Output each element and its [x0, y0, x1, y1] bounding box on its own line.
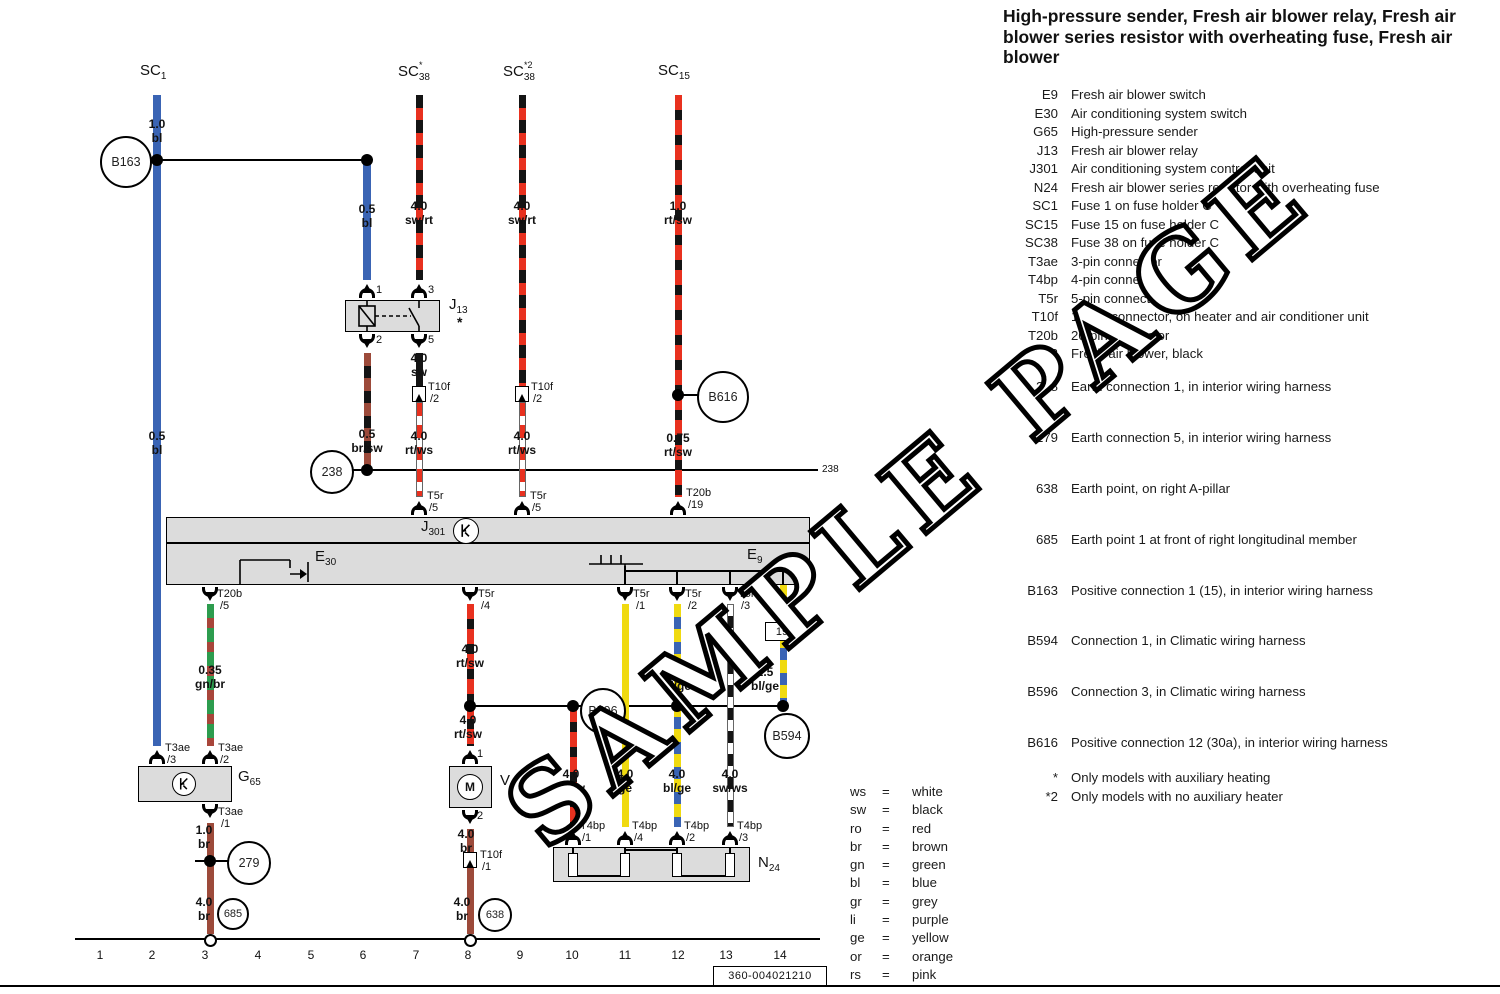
wire-label: 0.35gn/br [182, 664, 238, 691]
wiring-line [148, 159, 367, 161]
legend-description: 5-pin connector [1058, 290, 1162, 309]
wire-thin [624, 566, 626, 585]
diagram-label: T20b [686, 487, 711, 499]
diagram-label: T10f [428, 381, 450, 393]
junction-dot [361, 464, 373, 476]
color-abbr: bl [850, 874, 882, 892]
legend-description: Earth point, on right A-pillar [1058, 480, 1230, 499]
wire-label: 4.0rt/sw [442, 643, 498, 670]
legend-key: E30 [1003, 105, 1058, 124]
wire-thin [572, 847, 574, 853]
legend-description: Only models with no auxiliary heater [1058, 788, 1283, 807]
earth-point-icon [464, 934, 477, 947]
track-number: 8 [460, 948, 476, 962]
resistor-symbol [725, 853, 735, 877]
equals-sign: = [882, 893, 912, 911]
color-code-row-bl: bl=blue [850, 874, 953, 892]
legend-connection-638: 638Earth point, on right A-pillar [1003, 480, 1495, 499]
diagram-label: /1 [221, 818, 230, 830]
track-number: 3 [197, 948, 213, 962]
diagram-label: 1 [477, 748, 483, 760]
wire-label: 4.0rt/ws [494, 430, 550, 457]
color-code-row-or: or=orange [850, 948, 953, 966]
connector-icon [462, 587, 478, 597]
color-abbr: ro [850, 820, 882, 838]
color-abbr: ws [850, 783, 882, 801]
connector-icon [670, 505, 686, 515]
wire-swrt [416, 95, 423, 280]
legend-description: Fresh air blower, black [1058, 345, 1203, 364]
track-number: 4 [250, 948, 266, 962]
wire-thin [676, 571, 678, 585]
legend-component-T4bp: T4bp4-pin connector [1003, 271, 1495, 290]
color-name: yellow [912, 929, 949, 947]
fuse-label-sc15: SC15 [658, 62, 690, 82]
legend-key: SC1 [1003, 197, 1058, 216]
wire-swrt [519, 95, 526, 386]
wire-label: 4.0sw [391, 352, 447, 379]
equals-sign: = [882, 783, 912, 801]
legend-component-E30: E30Air conditioning system switch [1003, 105, 1495, 124]
legend-description: Fresh air blower switch [1058, 86, 1206, 105]
component-label-j301: J301 [421, 518, 445, 538]
wire-label: 2.5bl/ge [737, 666, 793, 693]
node-circle-238: 238 [310, 450, 354, 494]
track-number: 1 [92, 948, 108, 962]
wire-label: 4.0br [434, 896, 490, 923]
legend-description: Fuse 15 on fuse holder C [1058, 216, 1219, 235]
legend-key: T4bp [1003, 271, 1058, 290]
diagram-label: /2 [686, 832, 695, 844]
color-code-row-br: br=brown [850, 838, 953, 856]
diagram-label: T20b [217, 588, 242, 600]
diagram-label: T4bp [632, 820, 657, 832]
diagram-label: T5r [738, 588, 755, 600]
diagram-label: /2 [430, 393, 439, 405]
color-code-row-ge: ge=yellow [850, 929, 953, 947]
equals-sign: = [882, 911, 912, 929]
earth-point-icon [204, 934, 217, 947]
legend-key: 238 [1003, 378, 1058, 397]
color-code-row-ro: ro=red [850, 820, 953, 838]
wire-label: 4.0br [176, 896, 232, 923]
node-circle-B616: B616 [697, 371, 749, 423]
page-title: High-pressure sender, Fresh air blower r… [1003, 6, 1495, 68]
node-circle-279: 279 [227, 841, 271, 885]
legend-component-J301: J301Air conditioning system control unit [1003, 160, 1495, 179]
connection-legend-list: 238Earth connection 1, in interior wirin… [1003, 378, 1495, 753]
component-label-g65: G65 [238, 768, 261, 788]
legend-key: T5r [1003, 290, 1058, 309]
junction-dot [671, 700, 683, 712]
fuse-label-sc38: SC38*2 [503, 60, 532, 83]
track-number: 5 [303, 948, 319, 962]
diagram-label: /3 [741, 600, 750, 612]
equals-sign: = [882, 801, 912, 819]
color-code-row-gn: gn=green [850, 856, 953, 874]
track-number: 6 [355, 948, 371, 962]
diagram-label: * [457, 314, 462, 330]
connector-icon [669, 587, 685, 597]
legend-component-E9: E9Fresh air blower switch [1003, 86, 1495, 105]
diagram-label: /4 [481, 600, 490, 612]
diagram-label: T4bp [684, 820, 709, 832]
color-abbr: or [850, 948, 882, 966]
legend-key: B594 [1003, 632, 1058, 651]
legend-description: Positive connection 1 (15), in interior … [1058, 582, 1373, 601]
inline-connector-icon [515, 386, 529, 402]
legend-description: Connection 1, in Climatic wiring harness [1058, 632, 1306, 651]
diagram-label: /5 [532, 502, 541, 514]
relay-symbol [345, 300, 440, 332]
legend-component-T3ae: T3ae3-pin connector [1003, 253, 1495, 272]
e9-switch-symbol [583, 544, 653, 570]
resistor-symbol [568, 853, 578, 877]
color-code-row-gr: gr=grey [850, 893, 953, 911]
symbol-sender-icon [453, 518, 479, 544]
diagram-label: T10f [480, 849, 502, 861]
connector-icon [462, 810, 478, 820]
wire-label: 0.75rt/sw [650, 432, 706, 459]
legend-key: B616 [1003, 734, 1058, 753]
connector-icon [514, 505, 530, 515]
symbol-motor-icon: M [457, 774, 483, 800]
legend-key: B596 [1003, 683, 1058, 702]
connector-icon [411, 334, 427, 344]
fuse-label-sc38: SC38* [398, 60, 422, 83]
diagram-label: T4bp [737, 820, 762, 832]
diagram-label: /2 [688, 600, 697, 612]
diagram-label: T5r [427, 490, 444, 502]
legend-key: T10f [1003, 308, 1058, 327]
color-name: brown [912, 838, 948, 856]
wire-color-code-table: ws=whitesw=blackro=redbr=browngn=greenbl… [850, 783, 953, 984]
track-reference-box: 19 [765, 622, 799, 641]
diagram-label: T5r [478, 588, 495, 600]
track-number: 10 [564, 948, 580, 962]
legend-description: Only models with auxiliary heating [1058, 769, 1270, 788]
wiring-diagram-page: 19MB163238B616B596B594279685638SC1SC38*S… [0, 0, 1500, 994]
diagram-label: /4 [634, 832, 643, 844]
legend-key: 638 [1003, 480, 1058, 499]
diagram-label: 2 [376, 334, 382, 346]
legend-description: Air conditioning system control unit [1058, 160, 1275, 179]
legend-connection-238: 238Earth connection 1, in interior wirin… [1003, 378, 1495, 397]
color-abbr: br [850, 838, 882, 856]
diagram-label: 2 [477, 810, 483, 822]
wire-label: 1.0bl [129, 118, 185, 145]
legend-component-SC38: SC38Fuse 38 on fuse holder C [1003, 234, 1495, 253]
component-label-e30: E30 [315, 548, 336, 568]
legend-component-N24: N24Fresh air blower series resistor with… [1003, 179, 1495, 198]
diagram-label: T3ae [165, 742, 190, 754]
legend-key: E9 [1003, 86, 1058, 105]
e30-switch-symbol [228, 548, 318, 585]
legend-description: Fuse 1 on fuse holder C [1058, 197, 1212, 216]
diagram-label: T3ae [218, 742, 243, 754]
diagram-label: 3 [428, 284, 434, 296]
wire-bl [153, 95, 161, 746]
symbol-sender-icon [172, 772, 196, 796]
legend-key: J13 [1003, 142, 1058, 161]
component-label-v2: V2 [500, 772, 516, 792]
component-label-n24: N24 [758, 854, 780, 874]
color-name: orange [912, 948, 953, 966]
track-number: 12 [670, 948, 686, 962]
diagram-label: 238 [822, 464, 839, 475]
connector-icon [462, 754, 478, 764]
connector-icon [411, 505, 427, 515]
diagram-label: /1 [482, 861, 491, 873]
diagram-label: /5 [220, 600, 229, 612]
color-name: red [912, 820, 931, 838]
node-circle-B594: B594 [764, 713, 810, 759]
legend-key: T20b [1003, 327, 1058, 346]
legend-description: Positive connection 12 (30a), in interio… [1058, 734, 1388, 753]
diagram-label: T5r [530, 490, 547, 502]
inline-connector-icon [412, 386, 426, 402]
diagram-label: /3 [739, 832, 748, 844]
wiring-line [573, 875, 625, 877]
notes-legend-list: *Only models with auxiliary heating*2Onl… [1003, 769, 1495, 806]
diagram-label: T5r [633, 588, 650, 600]
color-name: white [912, 783, 943, 801]
legend-description: Fuse 38 on fuse holder C [1058, 234, 1219, 253]
wire-label: 4.0bl/ge [649, 666, 705, 693]
wire-label: 4.0sw/rt [391, 200, 447, 227]
color-abbr: ge [850, 929, 882, 947]
wiring-line [677, 875, 730, 877]
legend-description: 4-pin connector [1058, 271, 1162, 290]
connector-icon [617, 835, 633, 845]
node-circle-B596: B596 [580, 688, 626, 734]
legend-component-SC1: SC1Fuse 1 on fuse holder C [1003, 197, 1495, 216]
equals-sign: = [882, 838, 912, 856]
junction-dot [151, 154, 163, 166]
legend-description: Earth connection 5, in interior wiring h… [1058, 429, 1331, 448]
color-name: black [912, 801, 943, 819]
connector-icon [202, 804, 218, 814]
diagram-label: /1 [636, 600, 645, 612]
equals-sign: = [882, 820, 912, 838]
legend-key: B163 [1003, 582, 1058, 601]
legend-component-SC15: SC15Fuse 15 on fuse holder C [1003, 216, 1495, 235]
connector-icon [411, 288, 427, 298]
component-box-n24 [553, 847, 750, 882]
wire-label: 4.0rt/sw [543, 768, 599, 795]
connector-icon [617, 587, 633, 597]
connector-icon [202, 587, 218, 597]
color-abbr: sw [850, 801, 882, 819]
legend-component-G65: G65High-pressure sender [1003, 123, 1495, 142]
wire-label: 4.0rt/sw [440, 714, 496, 741]
fuse-label-sc1: SC1 [140, 62, 166, 82]
wire-label: 0.5br/sw [339, 428, 395, 455]
wire-thin [676, 847, 678, 853]
legend-key: 685 [1003, 531, 1058, 550]
legend-description: Connection 3, in Climatic wiring harness [1058, 683, 1306, 702]
diagram-label: /1 [582, 832, 591, 844]
track-number: 9 [512, 948, 528, 962]
legend-description: 3-pin connector [1058, 253, 1162, 272]
junction-dot [672, 389, 684, 401]
wire-label: 0.5bl [339, 203, 395, 230]
legend-component-V2: V2Fresh air blower, black [1003, 345, 1495, 364]
diagram-label: /2 [220, 754, 229, 766]
diagram-label: 1 [376, 284, 382, 296]
legend-panel: High-pressure sender, Fresh air blower r… [1003, 6, 1495, 68]
connector-icon [359, 334, 375, 344]
connector-icon [149, 754, 165, 764]
legend-description: 10-pin connector, on heater and air cond… [1058, 308, 1369, 327]
diagram-label: /2 [533, 393, 542, 405]
legend-component-J13: J13Fresh air blower relay [1003, 142, 1495, 161]
wire-label: 4.0ge [597, 768, 653, 795]
wire-label: 4.0sw/rt [494, 200, 550, 227]
connector-icon [722, 835, 738, 845]
legend-key: G65 [1003, 123, 1058, 142]
legend-connection-B594: B594Connection 1, in Climatic wiring har… [1003, 632, 1495, 651]
wire-label: 4.0bl/ge [649, 768, 705, 795]
legend-key: * [1003, 769, 1058, 788]
diagram-label: /19 [688, 499, 703, 511]
color-abbr: gn [850, 856, 882, 874]
connector-icon [565, 835, 581, 845]
equals-sign: = [882, 856, 912, 874]
legend-description: Earth point 1 at front of right longitud… [1058, 531, 1357, 550]
junction-dot [204, 855, 216, 867]
junction-dot [464, 700, 476, 712]
connector-icon [722, 587, 738, 597]
legend-component-T5r: T5r5-pin connector [1003, 290, 1495, 309]
color-abbr: rs [850, 966, 882, 984]
legend-key: V2 [1003, 345, 1058, 364]
wire-label: 1.0rt/sw [650, 200, 706, 227]
wiring-line [75, 938, 820, 941]
legend-key: SC38 [1003, 234, 1058, 253]
legend-key: N24 [1003, 179, 1058, 198]
diagram-label: 5 [428, 334, 434, 346]
track-number: 7 [408, 948, 424, 962]
legend-key: T3ae [1003, 253, 1058, 272]
track-number: 14 [772, 948, 788, 962]
legend-key: SC15 [1003, 216, 1058, 235]
wiring-line [367, 469, 818, 471]
wire-thin [782, 571, 784, 585]
connector-icon [202, 754, 218, 764]
legend-key: J301 [1003, 160, 1058, 179]
diagram-label: T10f [531, 381, 553, 393]
legend-description: High-pressure sender [1058, 123, 1198, 142]
wire-thin [729, 847, 731, 853]
resistor-symbol [672, 853, 682, 877]
diagram-label: T4bp [580, 820, 605, 832]
wire-thin [729, 571, 731, 585]
legend-key: 279 [1003, 429, 1058, 448]
equals-sign: = [882, 948, 912, 966]
track-number: 11 [617, 948, 633, 962]
legend-description: Fresh air blower series resistor with ov… [1058, 179, 1380, 198]
track-number: 13 [718, 948, 734, 962]
legend-connection-B616: B616Positive connection 12 (30a), in int… [1003, 734, 1495, 753]
legend-component-T10f: T10f10-pin connector, on heater and air … [1003, 308, 1495, 327]
color-name: grey [912, 893, 938, 911]
equals-sign: = [882, 966, 912, 984]
legend-connection-279: 279Earth connection 5, in interior wirin… [1003, 429, 1495, 448]
color-abbr: gr [850, 893, 882, 911]
legend-note-*: *Only models with auxiliary heating [1003, 769, 1495, 788]
wire-label: 4.0rt/ws [391, 430, 447, 457]
color-name: blue [912, 874, 937, 892]
color-name: purple [912, 911, 949, 929]
junction-dot [567, 700, 579, 712]
wire-label: 4.0sw/ws [702, 768, 758, 795]
component-legend-list: E9Fresh air blower switchE30Air conditio… [1003, 86, 1495, 364]
equals-sign: = [882, 874, 912, 892]
wiring-line [625, 849, 677, 851]
diagram-label: /3 [167, 754, 176, 766]
legend-description: Earth connection 1, in interior wiring h… [1058, 378, 1331, 397]
connector-icon [359, 288, 375, 298]
track-number: 2 [144, 948, 160, 962]
legend-description: 20-pin connector [1058, 327, 1169, 346]
color-name: pink [912, 966, 936, 984]
legend-connection-B163: B163Positive connection 1 (15), in inter… [1003, 582, 1495, 601]
junction-dot [777, 700, 789, 712]
legend-key: *2 [1003, 788, 1058, 807]
wiring-line [166, 542, 810, 544]
color-code-row-sw: sw=black [850, 801, 953, 819]
resistor-symbol [620, 853, 630, 877]
diagram-label: T3ae [218, 806, 243, 818]
legend-note-*2: *2Only models with no auxiliary heater [1003, 788, 1495, 807]
color-name: green [912, 856, 946, 874]
diagram-label: /5 [429, 502, 438, 514]
connector-icon [669, 835, 685, 845]
legend-component-T20b: T20b20-pin connector [1003, 327, 1495, 346]
wiring-line [625, 570, 783, 572]
color-code-row-ws: ws=white [850, 783, 953, 801]
component-label-j13: J13 [449, 296, 468, 316]
color-abbr: li [850, 911, 882, 929]
wire-thin [624, 847, 626, 853]
wire-label: 0.5bl [129, 430, 185, 457]
legend-description: Fresh air blower relay [1058, 142, 1198, 161]
legend-description: Air conditioning system switch [1058, 105, 1247, 124]
equals-sign: = [882, 929, 912, 947]
color-code-row-rs: rs=pink [850, 966, 953, 984]
legend-connection-B596: B596Connection 3, in Climatic wiring har… [1003, 683, 1495, 702]
component-label-e9: E9 [747, 546, 763, 566]
diagram-reference-code: 360-004021210 [713, 966, 827, 986]
diagram-label: T5r [685, 588, 702, 600]
color-code-row-li: li=purple [850, 911, 953, 929]
legend-connection-685: 685Earth point 1 at front of right longi… [1003, 531, 1495, 550]
junction-dot [361, 154, 373, 166]
